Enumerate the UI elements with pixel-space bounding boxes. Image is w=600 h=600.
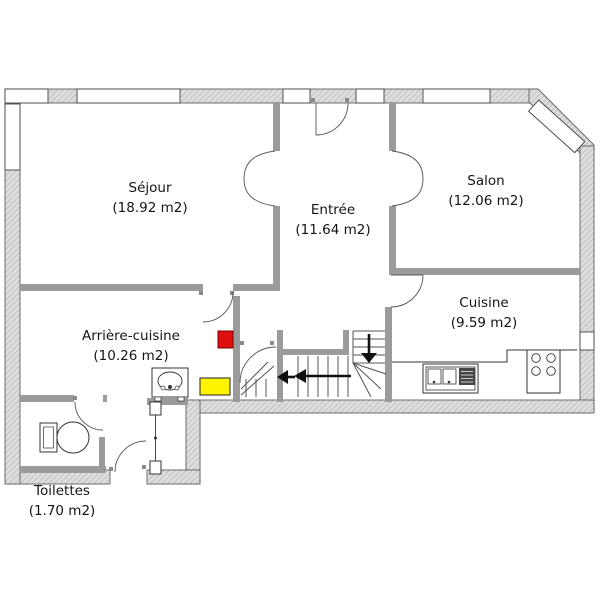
label-sejour: Séjour (18.92 m2) — [112, 178, 187, 218]
room-area: (18.92 m2) — [112, 198, 187, 218]
window-icon — [5, 104, 20, 170]
door-sejour-arriere-cuisine-icon — [203, 292, 233, 322]
jamb — [109, 467, 113, 471]
room-area: (12.06 m2) — [448, 191, 523, 211]
kitchen — [392, 350, 577, 393]
room-name: Arrière-cuisine — [82, 326, 180, 346]
wall-sejour-bottom-right — [233, 284, 280, 291]
yellow-marker — [200, 378, 230, 395]
wall-toilettes-bottom — [20, 466, 106, 473]
stove-icon — [527, 350, 560, 393]
stair-arrows — [277, 334, 377, 384]
outer-wall-right — [580, 146, 594, 413]
jamb — [73, 396, 77, 400]
jamb — [199, 291, 203, 295]
label-arriere-cuisine: Arrière-cuisine (10.26 m2) — [82, 326, 180, 366]
window-icon — [423, 89, 490, 103]
room-name: Toilettes — [29, 481, 96, 501]
door-cuisine-icon — [391, 275, 423, 307]
wall-salon-bottom — [389, 268, 580, 275]
room-area: (9.59 m2) — [451, 313, 518, 333]
stair-left-arrow-icon — [294, 369, 351, 383]
label-salon: Salon (12.06 m2) — [448, 171, 523, 211]
label-cuisine: Cuisine (9.59 m2) — [451, 293, 518, 333]
red-marker — [218, 331, 233, 348]
staircase — [241, 331, 386, 397]
jamb — [270, 341, 274, 345]
room-area: (1.70 m2) — [29, 501, 96, 521]
entrance-door-icon — [316, 103, 348, 135]
jamb — [142, 465, 146, 469]
wall-entree-salon-lower — [389, 206, 396, 270]
room-name: Cuisine — [451, 293, 518, 313]
toilet-icon — [40, 422, 89, 453]
window-icon — [356, 89, 384, 103]
back-door-icon — [115, 441, 146, 472]
window-icon — [283, 89, 310, 103]
sink-icon — [423, 364, 478, 393]
washing-machine-icon — [152, 368, 188, 401]
label-entree: Entrée (11.64 m2) — [295, 200, 370, 240]
stair-down-arrow-icon — [361, 334, 377, 363]
room-name: Séjour — [112, 178, 187, 198]
floor-plan: Séjour (18.92 m2) Entrée (11.64 m2) Salo… — [0, 0, 600, 600]
wall-stair-lobby-right — [277, 330, 283, 402]
wall-toilettes-right — [99, 437, 105, 469]
wall-entree-salon-upper — [389, 103, 396, 151]
wall-sejour-entree-lower — [273, 206, 280, 290]
room-name: Salon — [448, 171, 523, 191]
label-toilettes: Toilettes (1.70 m2) — [29, 481, 96, 521]
double-door-salon-icon — [392, 151, 423, 206]
wall-sejour-entree-upper — [273, 103, 280, 151]
jamb — [311, 98, 315, 102]
wall-cuisine-stairs — [385, 307, 392, 402]
wall-hall-left — [233, 296, 240, 402]
jamb — [345, 98, 349, 102]
service-door-icon — [150, 402, 161, 474]
room-area: (10.26 m2) — [82, 346, 180, 366]
double-door-sejour-icon — [244, 151, 275, 206]
wall-toilettes-top-stub — [103, 395, 107, 402]
wall-toilettes-top — [20, 395, 74, 402]
window-icon — [580, 332, 594, 350]
jamb — [240, 341, 244, 345]
door-stair-lobby-icon — [240, 347, 276, 383]
window-icon — [5, 89, 48, 103]
wall-sejour-bottom-left — [20, 284, 203, 291]
room-name: Entrée — [295, 200, 370, 220]
wall-stair-return — [343, 330, 349, 355]
window-icon — [77, 89, 180, 103]
interior-walls — [20, 103, 580, 473]
room-area: (11.64 m2) — [295, 220, 370, 240]
wall-stair-top — [283, 349, 343, 355]
